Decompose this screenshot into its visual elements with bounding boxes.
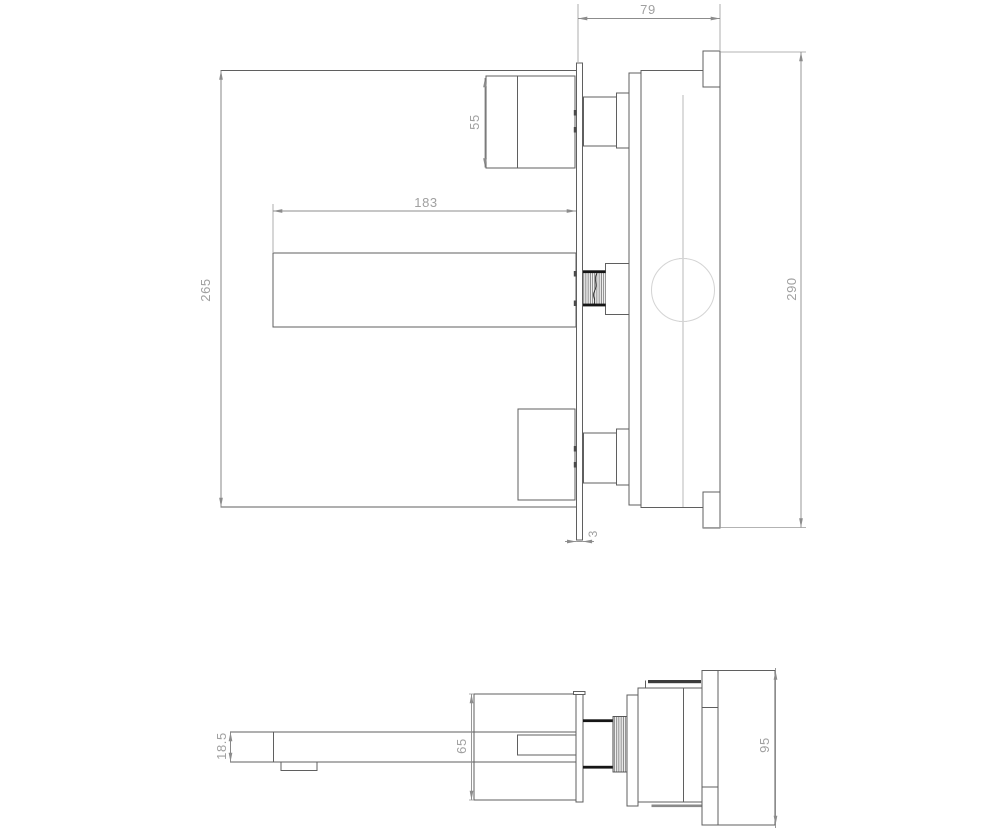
plate-tick	[574, 301, 577, 307]
dim-text-55: 55	[467, 114, 482, 130]
valve-body	[641, 71, 720, 508]
body-front-plate	[627, 695, 638, 806]
dim-text-3: 3	[586, 530, 600, 537]
spout-nipple-flange	[606, 264, 630, 315]
cad-canvas: 79 183 265 55 290 3	[0, 0, 1000, 830]
nipple-tube-thread-bottom	[583, 766, 613, 769]
body-bottom-bar	[652, 805, 703, 808]
plate-tick	[574, 127, 577, 133]
handle-trim-box	[486, 76, 575, 168]
dim-text-183: 183	[414, 195, 438, 210]
bottom-stub	[584, 433, 617, 483]
valve-body-bottom-view	[638, 688, 702, 802]
dim-text-18-5: 18.5	[214, 732, 229, 760]
plate-tick	[574, 446, 577, 452]
dim-text-79: 79	[640, 2, 656, 17]
dim-text-65: 65	[454, 738, 469, 754]
spout-mount-detail	[518, 735, 577, 755]
plate-tick	[574, 462, 577, 468]
aerator	[281, 762, 317, 771]
dim-text-95: 95	[757, 737, 772, 753]
spout-tube	[274, 732, 577, 762]
mounting-tab-bottom-bottom-view	[702, 787, 718, 825]
front-view	[221, 71, 577, 508]
lower-trim-box	[518, 409, 575, 500]
side-view	[583, 51, 720, 528]
nipple-hex-flange	[613, 717, 627, 773]
spout-tip	[231, 732, 274, 762]
top-stub-flange	[617, 93, 630, 148]
nipple-tube	[583, 722, 613, 767]
spout-front	[273, 253, 576, 327]
body-top-bar	[648, 680, 701, 683]
mounting-tab-top-bottom-view	[702, 671, 718, 708]
top-stub	[584, 97, 617, 146]
bottom-stub-flange	[617, 429, 630, 485]
dim-text-290: 290	[784, 277, 799, 301]
escutcheon-block	[474, 694, 576, 800]
wall-plate-bottom-view	[576, 695, 583, 803]
nipple-thread-top	[583, 270, 606, 273]
plate-tick	[574, 110, 577, 116]
nipple-tube-thread-top	[583, 719, 613, 722]
wall-plate	[577, 63, 583, 540]
mounting-bracket	[629, 73, 641, 505]
mounting-tab-top	[703, 51, 720, 87]
bottom-view	[231, 671, 776, 826]
drawing-sheet: 79 183 265 55 290 3	[0, 0, 1000, 830]
plate-tick	[574, 271, 577, 277]
dim-text-265: 265	[198, 278, 213, 302]
mounting-tab-bottom	[703, 492, 720, 528]
